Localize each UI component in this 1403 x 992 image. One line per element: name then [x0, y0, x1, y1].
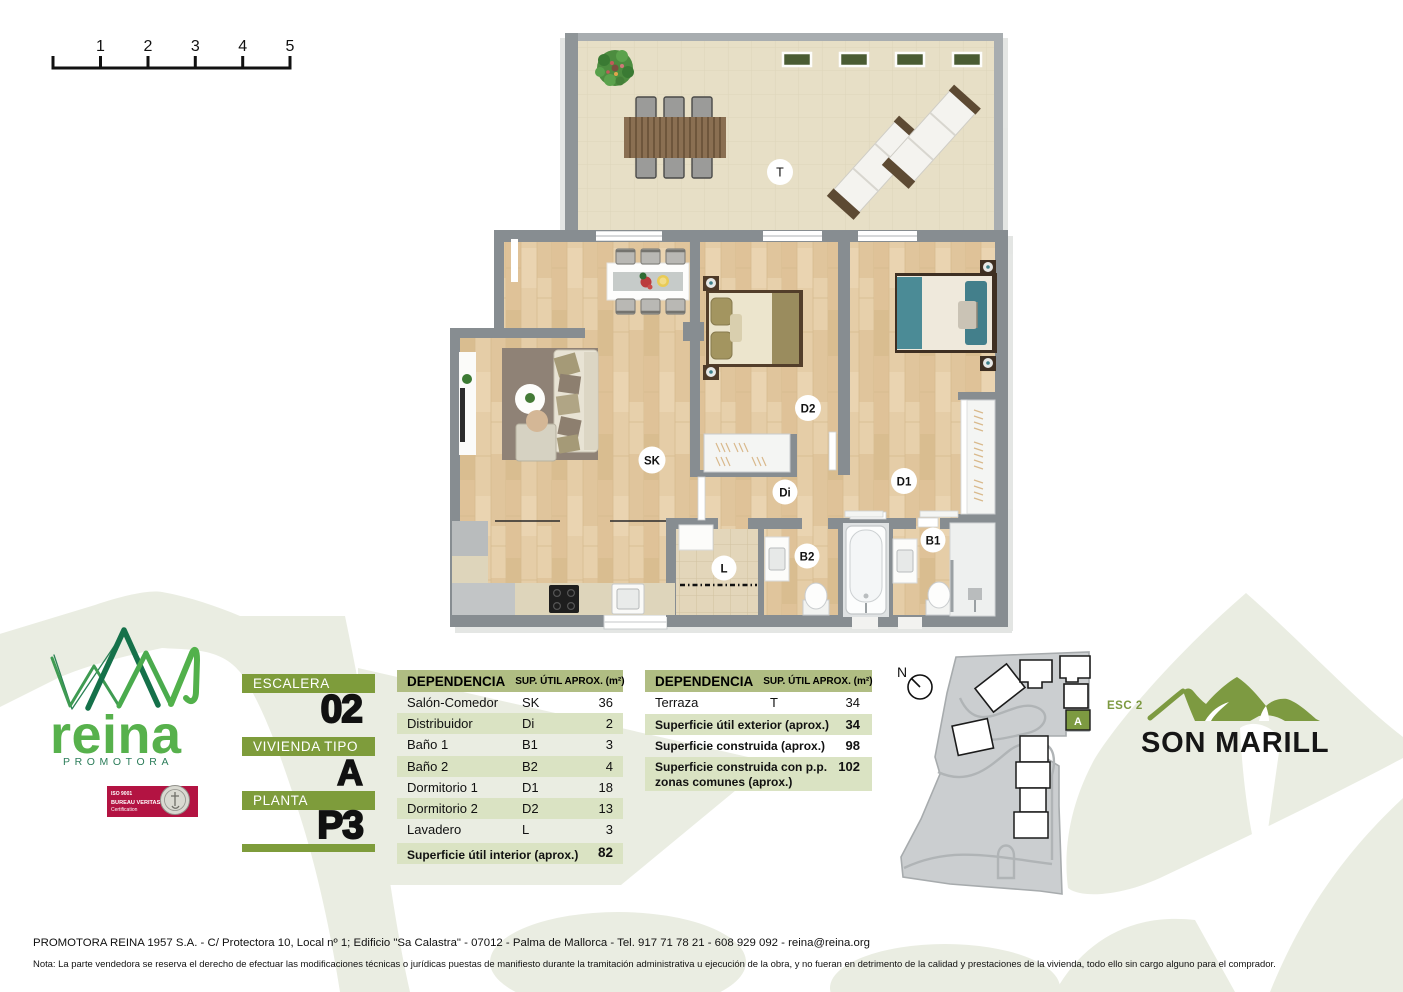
svg-text:T: T — [776, 166, 784, 180]
svg-text:BUREAU VERITAS: BUREAU VERITAS — [111, 800, 161, 806]
svg-text:5: 5 — [286, 38, 295, 55]
svg-text:D2: D2 — [801, 404, 816, 416]
svg-text:ISO 9001: ISO 9001 — [111, 791, 132, 797]
svg-text:PROMOTORA: PROMOTORA — [63, 756, 173, 768]
svg-text:D1: D1 — [897, 477, 912, 489]
svg-text:B1: B1 — [926, 536, 941, 548]
svg-text:SK: SK — [644, 456, 661, 468]
svg-text:L: L — [720, 564, 727, 576]
svg-text:ESC 2: ESC 2 — [1107, 700, 1143, 712]
svg-text:N: N — [897, 664, 907, 680]
svg-text:3: 3 — [191, 38, 200, 55]
svg-text:1: 1 — [96, 38, 105, 55]
svg-text:SON MARILL: SON MARILL — [1141, 727, 1329, 759]
svg-text:A: A — [1074, 716, 1082, 728]
svg-text:B2: B2 — [800, 552, 815, 564]
svg-text:4: 4 — [238, 38, 247, 55]
svg-text:Certification: Certification — [111, 807, 138, 813]
svg-text:Di: Di — [779, 488, 791, 500]
svg-text:2: 2 — [144, 38, 153, 55]
